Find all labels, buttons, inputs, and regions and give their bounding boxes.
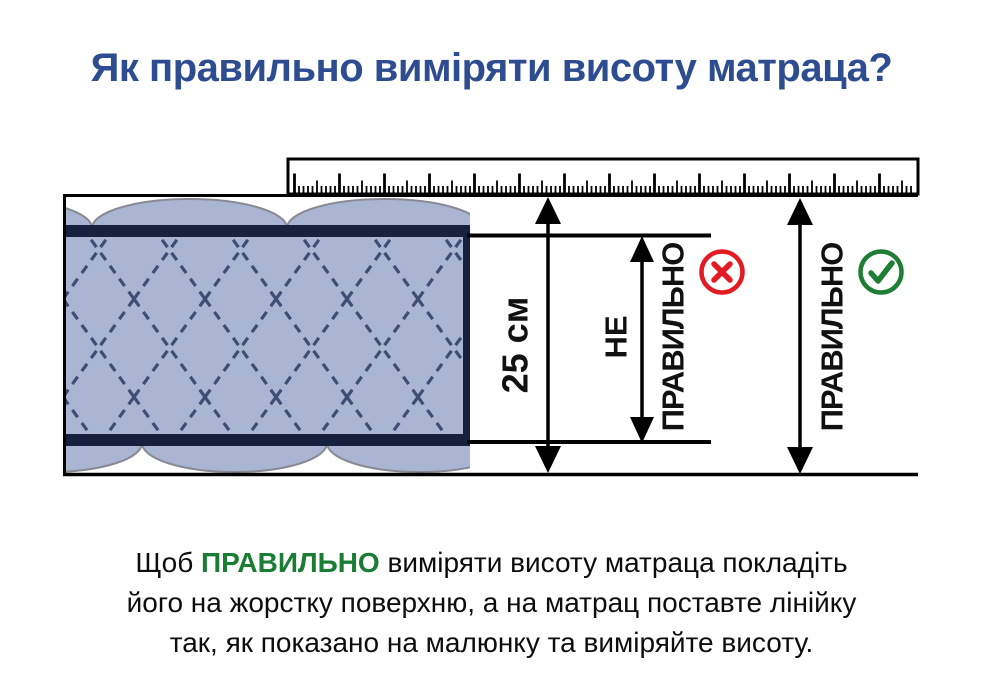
- caption-line-1: Щоб ПРАВИЛЬНО виміряти висоту матраца по…: [0, 543, 983, 583]
- caption-text: Щоб ПРАВИЛЬНО виміряти висоту матраца по…: [0, 543, 983, 663]
- x-circle-icon: [702, 252, 743, 293]
- ruler-graphic: [288, 159, 918, 194]
- mattress-top-band: [63, 225, 470, 237]
- wrong-measure-arrow: [630, 236, 654, 443]
- caption-line-3: так, як показано на малюнку та виміряйте…: [0, 623, 983, 663]
- wrong-label-line1: НЕ: [599, 315, 634, 358]
- mattress-right-edge: [463, 225, 470, 446]
- mattress-graphic: [0, 199, 512, 472]
- correct-measure-arrow: [787, 198, 813, 474]
- height-value-label: 25 см: [495, 297, 536, 394]
- caption-line-2: його на жорстку поверхню, а на матрац по…: [0, 583, 983, 623]
- caption-highlight: ПРАВИЛЬНО: [201, 547, 380, 578]
- wrong-label-line2: ПРАВИЛЬНО: [656, 243, 691, 432]
- full-height-arrow: [535, 197, 561, 473]
- check-circle-icon: [861, 252, 902, 293]
- correct-label: ПРАВИЛЬНО: [815, 243, 850, 432]
- mattress-bottom-band: [63, 434, 470, 446]
